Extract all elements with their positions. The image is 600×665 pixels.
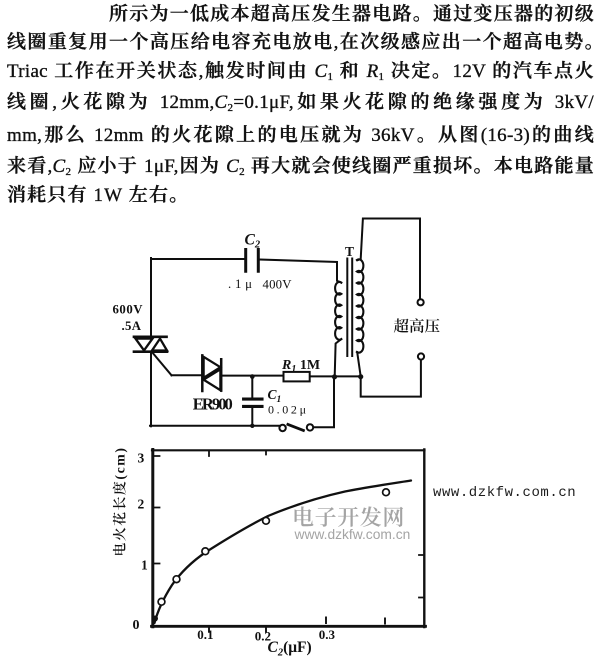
svg-text:C2(μF): C2(μF) (268, 639, 312, 659)
svg-text:C2: C2 (245, 232, 261, 251)
svg-text:0.3: 0.3 (319, 627, 336, 642)
svg-text:电火花长度(cm): 电火花长度(cm) (109, 448, 129, 557)
svg-text:2: 2 (138, 497, 145, 512)
svg-text:.1μ: .1μ (228, 277, 252, 291)
svg-text:1: 1 (141, 558, 148, 573)
svg-text:超高压: 超高压 (394, 315, 441, 337)
svg-text:0: 0 (133, 618, 140, 633)
svg-text:0.02μ: 0.02μ (268, 403, 306, 417)
svg-text:400V: 400V (263, 278, 293, 292)
svg-text:R1 1M: R1 1M (281, 358, 320, 375)
svg-text:T: T (345, 244, 354, 259)
svg-text:ER900: ER900 (193, 394, 233, 413)
svg-text:.5A: .5A (122, 319, 142, 333)
svg-text:600V: 600V (113, 303, 144, 317)
svg-text:0.1: 0.1 (197, 627, 213, 642)
svg-text:3: 3 (138, 451, 145, 466)
